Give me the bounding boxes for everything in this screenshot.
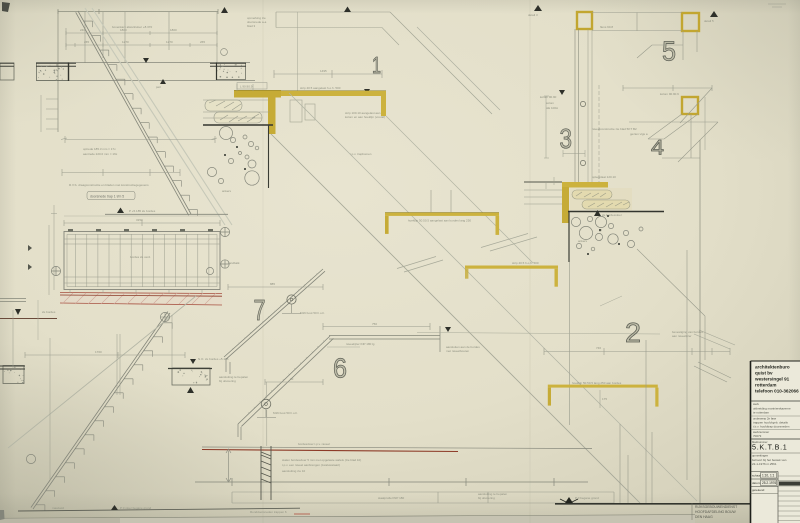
svg-text:1270: 1270	[122, 40, 129, 44]
svg-text:aansluiting zie 10: aansluiting zie 10	[282, 469, 306, 473]
svg-text:P +5.185 2e bordes: P +5.185 2e bordes	[129, 209, 156, 213]
svg-text:getekend: getekend	[752, 488, 765, 492]
svg-text:70073: 70073	[753, 434, 762, 438]
svg-text:t.p.v. trapbomen: t.p.v. trapbomen	[350, 152, 372, 156]
svg-text:1760: 1760	[95, 350, 102, 354]
svg-text:detail 3: detail 3	[528, 13, 538, 17]
svg-text:175: 175	[602, 397, 607, 401]
svg-text:hoeklijn 50.50.5 aangelast aa: hoeklijn 50.50.5 aangelast aan bordes la…	[408, 219, 471, 223]
svg-text:rotterdam: rotterdam	[755, 383, 776, 388]
svg-text:750: 750	[372, 322, 377, 326]
svg-text:22-1-1976 nr.2561: 22-1-1976 nr.2561	[752, 462, 777, 466]
svg-text:1495: 1495	[320, 69, 327, 73]
svg-text:ankers: ankers	[222, 189, 232, 193]
svg-text:1800: 1800	[170, 28, 177, 32]
svg-text:3: 3	[560, 123, 573, 154]
svg-text:met raveelbouten: met raveelbouten	[446, 349, 470, 353]
svg-text:20: 20	[290, 377, 294, 381]
svg-text:opmerkingen: opmerkingen	[752, 454, 769, 458]
svg-text:te rotterdam: te rotterdam	[753, 411, 770, 415]
svg-text:bij uitvoering: bij uitvoering	[478, 496, 495, 500]
svg-text:Ronddoorsneden trappen 6: Ronddoorsneden trappen 6	[250, 510, 287, 514]
svg-text:M16 bout 50 h.o.h.: M16 bout 50 h.o.h.	[273, 411, 298, 415]
svg-text:3150: 3150	[136, 218, 143, 222]
svg-text:bordes 2e verd.: bordes 2e verd.	[130, 255, 151, 259]
svg-text:aantrede 220.0 mm = 16x: aantrede 220.0 mm = 16x	[83, 152, 118, 156]
svg-text:telefoon 010-362066: telefoon 010-362066	[755, 389, 799, 394]
svg-text:westersingel 91: westersingel 91	[754, 377, 790, 382]
svg-text:werk: werk	[753, 402, 760, 406]
svg-text:stalen bordesvloer 5 mm met op: stalen bordesvloer 5 mm met opgelaste wa…	[282, 458, 361, 462]
svg-text:schaal: schaal	[752, 474, 761, 478]
svg-text:25.2.1976: 25.2.1976	[762, 481, 776, 485]
svg-text:HOOFDAFDELING BOUW: HOOFDAFDELING BOUW	[695, 510, 736, 514]
svg-text:raveelconstructie zie blad 5KT: raveelconstructie zie blad 5KT B2	[592, 127, 637, 131]
svg-text:5.K.T.B.1: 5.K.T.B.1	[752, 443, 787, 452]
svg-text:N.O. 2e bordes +5.185: N.O. 2e bordes +5.185	[198, 357, 229, 361]
svg-text:bovenkant afwerkvloer +8.370: bovenkant afwerkvloer +8.370	[112, 25, 152, 29]
svg-text:kolom: kolom	[546, 101, 555, 105]
svg-text:P 0 vloer begane grond: P 0 vloer begane grond	[120, 506, 151, 510]
svg-text:DEN HAAG: DEN HAAG	[695, 515, 713, 519]
svg-text:2e bordes: 2e bordes	[42, 310, 56, 314]
svg-text:746: 746	[596, 346, 601, 350]
svg-text:2: 2	[625, 317, 641, 348]
svg-text:optrede 185.3 mm = 17x: optrede 185.3 mm = 17x	[83, 147, 116, 151]
svg-text:randbalk: randbalk	[228, 261, 240, 265]
svg-text:aan raveelijzer: aan raveelijzer	[672, 334, 692, 338]
svg-text:ankers: ankers	[578, 239, 588, 243]
svg-text:M16 bout 50 h.o.h.: M16 bout 50 h.o.h.	[300, 311, 325, 315]
svg-text:maaiveld: maaiveld	[52, 506, 64, 510]
svg-text:detail 5: detail 5	[704, 19, 714, 23]
svg-text:5: 5	[662, 36, 676, 67]
svg-text:L 90.90.9: L 90.90.9	[240, 85, 253, 89]
svg-text:kolom en aan hoeklijn (vooraf): kolom en aan hoeklijn (vooraf)	[345, 115, 385, 119]
svg-text:kolom 90.90: kolom 90.90	[540, 95, 557, 99]
svg-text:885: 885	[270, 282, 275, 286]
svg-text:2e bordesvloer: 2e bordesvloer	[602, 213, 622, 217]
svg-text:flens 90.8: flens 90.8	[600, 25, 613, 29]
svg-text:265: 265	[200, 40, 205, 44]
svg-text:kolom 90.90.9: kolom 90.90.9	[660, 92, 679, 96]
svg-text:strip 40.5 h.o.h. 500: strip 40.5 h.o.h. 500	[512, 261, 539, 265]
svg-text:R.V.S. draagconstructie en bla: R.V.S. draagconstructie en bladen met ko…	[69, 183, 149, 187]
svg-text:raveelijzer INP 180 lg: raveelijzer INP 180 lg	[346, 342, 375, 346]
svg-text:staalprofiel INP 180: staalprofiel INP 180	[378, 496, 404, 500]
svg-text:6: 6	[333, 353, 347, 384]
svg-text:1270: 1270	[166, 40, 173, 44]
svg-text:hoeklijn 50.50.5 lang 250 aan: hoeklijn 50.50.5 lang 250 aan bordes	[572, 381, 622, 385]
svg-text:architektenburo: architektenburo	[755, 365, 790, 370]
svg-text:doorsnede trap 1 t/m 5: doorsnede trap 1 t/m 5	[90, 195, 124, 199]
svg-text:blad 3: blad 3	[247, 24, 256, 28]
svg-text:peil: peil	[156, 85, 161, 89]
svg-text:RIJKSGEBOUWENDIENST: RIJKSGEBOUWENDIENST	[695, 505, 737, 509]
svg-text:t.b.v. hoofdtrap doorsneden: t.b.v. hoofdtrap doorsneden	[753, 425, 790, 429]
svg-text:1: 1	[372, 52, 381, 78]
svg-text:datum: datum	[752, 481, 761, 485]
svg-text:oplegplaat 120.10: oplegplaat 120.10	[592, 175, 616, 179]
svg-text:HE 100A: HE 100A	[546, 106, 558, 110]
svg-text:bij uitvoering: bij uitvoering	[219, 379, 236, 383]
svg-text:bordesvloer t.p.v. raveel: bordesvloer t.p.v. raveel	[298, 442, 330, 446]
svg-text:1:10, 1:1: 1:10, 1:1	[762, 474, 775, 478]
svg-text:P 0 begane grond: P 0 begane grond	[575, 496, 599, 500]
svg-text:strip 40.5 aangelast h.o.h. 5: strip 40.5 aangelast h.o.h. 500	[300, 86, 341, 90]
svg-text:t.p.v. een raveel aanbrengen (: t.p.v. een raveel aanbrengen (zwaluwstaa…	[282, 463, 340, 467]
svg-text:gezien vlgs a: gezien vlgs a	[630, 132, 648, 136]
svg-text:quist bv: quist bv	[755, 371, 773, 376]
